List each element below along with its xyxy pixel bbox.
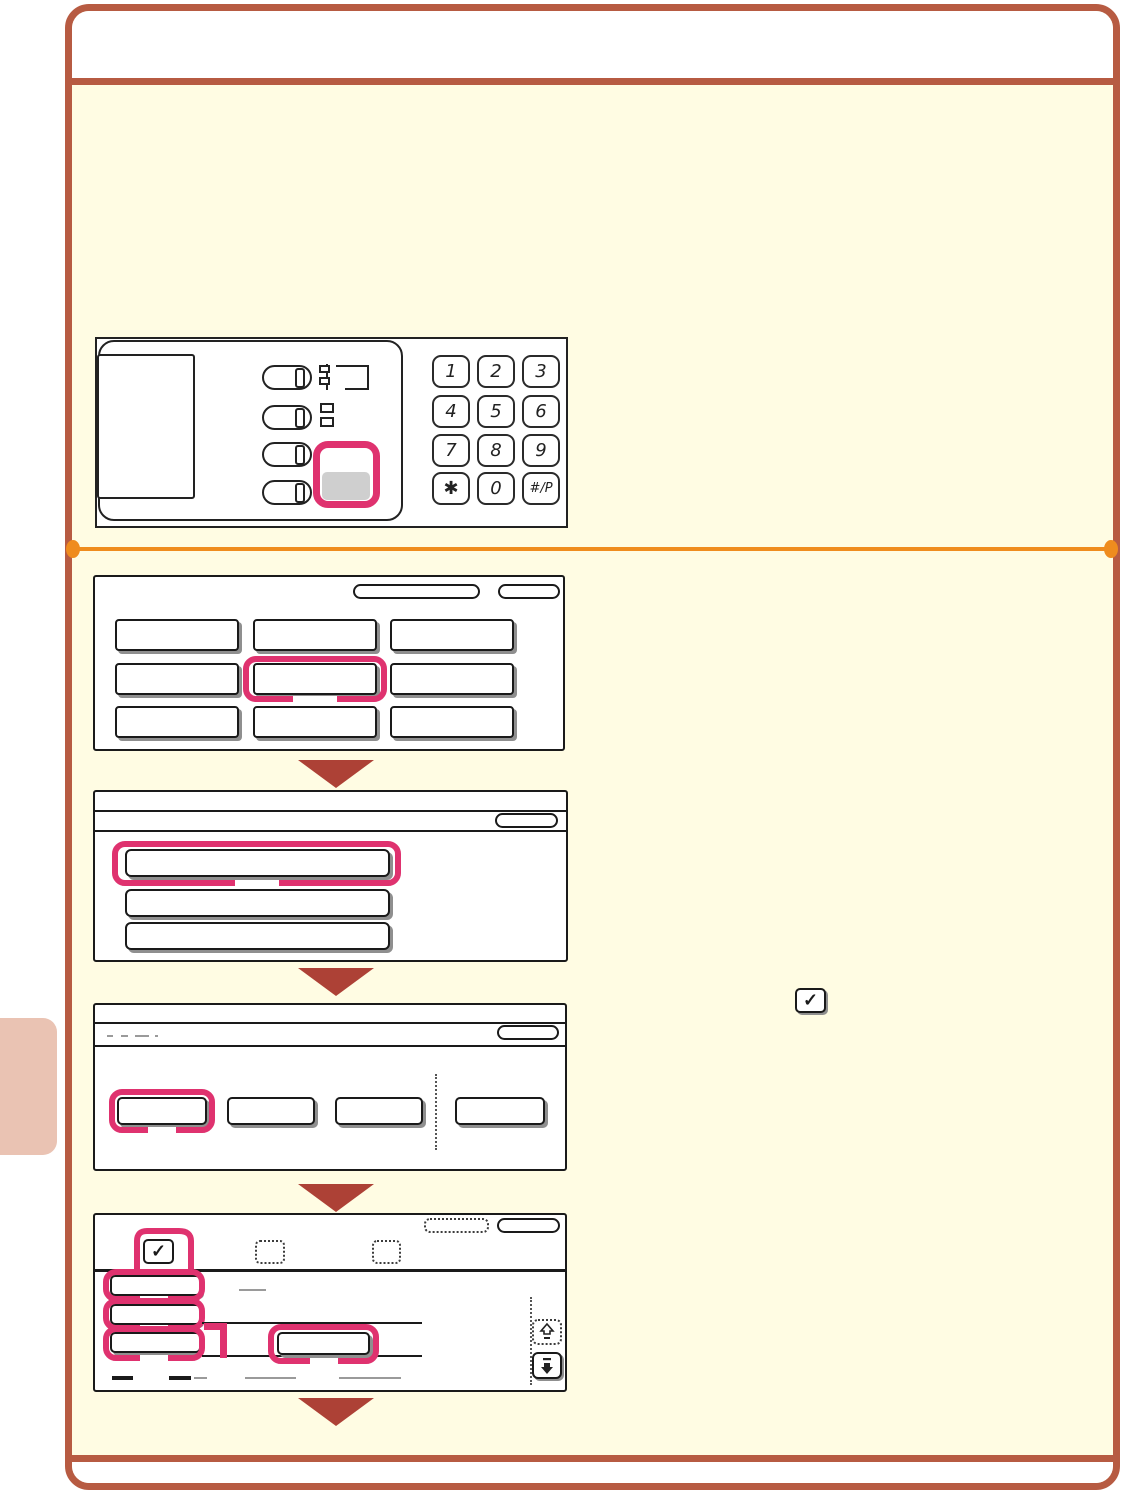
touch-screen-display: [97, 354, 195, 499]
menu-button[interactable]: [253, 706, 377, 738]
back-button[interactable]: [495, 813, 558, 828]
mode-select-button-4[interactable]: [262, 480, 312, 505]
title-bar-line: [95, 1022, 565, 1024]
back-button[interactable]: [497, 1218, 560, 1233]
key-label: 4: [445, 401, 456, 422]
key-label: 3: [535, 361, 546, 382]
settings-icon: [319, 402, 339, 430]
menu-button[interactable]: [390, 663, 514, 695]
footer-mark: [169, 1376, 191, 1380]
menu-button[interactable]: [390, 619, 514, 651]
chapter-side-tab: [0, 1018, 57, 1155]
keypad-key-pound[interactable]: #/P: [522, 472, 560, 505]
step-screen-1: [93, 575, 565, 751]
category-button[interactable]: [227, 1097, 315, 1125]
menu-button[interactable]: [115, 706, 239, 738]
faint-title-mark: [135, 1035, 149, 1037]
step-arrow: [298, 760, 374, 788]
highlight-ring: [103, 1326, 205, 1361]
keypad-key-4[interactable]: 4: [432, 395, 470, 428]
footer-mark: [245, 1377, 296, 1379]
menu-button[interactable]: [115, 663, 239, 695]
divider-dot-left: [66, 540, 80, 558]
menu-button[interactable]: [390, 706, 514, 738]
category-button[interactable]: [455, 1097, 545, 1125]
key-label: 7: [445, 440, 456, 461]
keypad-key-0[interactable]: 0: [477, 472, 515, 505]
step-screen-3: [93, 1003, 567, 1171]
section-divider-line: [73, 547, 1111, 551]
step-arrow: [298, 1184, 374, 1212]
inline-checkbox-checked-icon: ✓: [795, 988, 826, 1013]
key-label: 6: [535, 401, 546, 422]
faint-title-mark: [107, 1035, 113, 1037]
key-label: ✱: [443, 478, 458, 499]
setting-item-button[interactable]: [125, 889, 390, 917]
mode-select-button-2[interactable]: [262, 405, 312, 430]
divider-dot-right: [1104, 540, 1118, 558]
setting-item-button[interactable]: [125, 922, 390, 950]
keypad-key-3[interactable]: 3: [522, 355, 560, 388]
title-bar-line: [95, 810, 566, 812]
control-panel-diagram: 1 2 3 4 5 6 7 8 9 ✱ 0 #/P: [95, 337, 568, 528]
page-footer-band: [72, 1455, 1113, 1483]
highlight-ring-settings-key: [313, 441, 380, 508]
highlight-ring: [268, 1324, 379, 1364]
checkbox-empty[interactable]: [255, 1240, 285, 1264]
footer-mark: [339, 1377, 401, 1379]
category-button[interactable]: [335, 1097, 423, 1125]
keypad-key-7[interactable]: 7: [432, 434, 470, 467]
faint-title-mark: [121, 1035, 128, 1037]
scroll-down-button[interactable]: [532, 1352, 562, 1379]
keypad-key-8[interactable]: 8: [477, 434, 515, 467]
menu-button[interactable]: [115, 619, 239, 651]
step-screen-2: [93, 790, 568, 962]
exit-button[interactable]: [498, 584, 560, 599]
step-arrow: [298, 1398, 374, 1426]
keypad-key-2[interactable]: 2: [477, 355, 515, 388]
connector-elbow-vertical: [220, 1323, 227, 1358]
keypad-key-5[interactable]: 5: [477, 395, 515, 428]
page-header-band: [72, 11, 1113, 85]
subtitle-bar-line: [95, 1045, 565, 1047]
footer-mark: [112, 1376, 133, 1380]
highlight-ring: [109, 1089, 215, 1133]
mode-select-button-3[interactable]: [262, 442, 312, 467]
job-status-icon: [318, 359, 376, 395]
subtitle-bar-line: [95, 830, 566, 832]
list-placeholder-mark: [239, 1289, 266, 1291]
key-label: 8: [490, 440, 501, 461]
keypad-key-9[interactable]: 9: [522, 434, 560, 467]
menu-button[interactable]: [253, 619, 377, 651]
back-button[interactable]: [497, 1025, 559, 1040]
scroll-up-icon: [537, 1322, 557, 1342]
highlight-ring: [243, 656, 387, 702]
status-display-box: [353, 584, 480, 599]
key-label: #/P: [529, 481, 552, 496]
manual-page: 1 2 3 4 5 6 7 8 9 ✱ 0 #/P: [0, 0, 1126, 1500]
key-label: 1: [445, 361, 456, 382]
scroll-up-button[interactable]: [532, 1319, 562, 1345]
highlight-ring: [112, 841, 401, 886]
disabled-header-button: [424, 1218, 489, 1233]
step-screen-4: ✓: [93, 1213, 567, 1392]
scroll-down-icon: [537, 1356, 557, 1376]
keypad-key-star[interactable]: ✱: [432, 472, 470, 505]
footer-mark: [194, 1377, 207, 1379]
check-glyph: ✓: [803, 990, 818, 1011]
keypad-key-6[interactable]: 6: [522, 395, 560, 428]
key-label: 0: [490, 478, 501, 499]
keypad-key-1[interactable]: 1: [432, 355, 470, 388]
checkbox-empty[interactable]: [372, 1240, 401, 1264]
dotted-separator: [435, 1074, 437, 1150]
faint-title-mark: [155, 1035, 158, 1037]
mode-select-button-1[interactable]: [262, 365, 312, 390]
step-arrow: [298, 968, 374, 996]
key-label: 2: [490, 361, 501, 382]
key-label: 9: [535, 440, 546, 461]
key-label: 5: [490, 401, 501, 422]
